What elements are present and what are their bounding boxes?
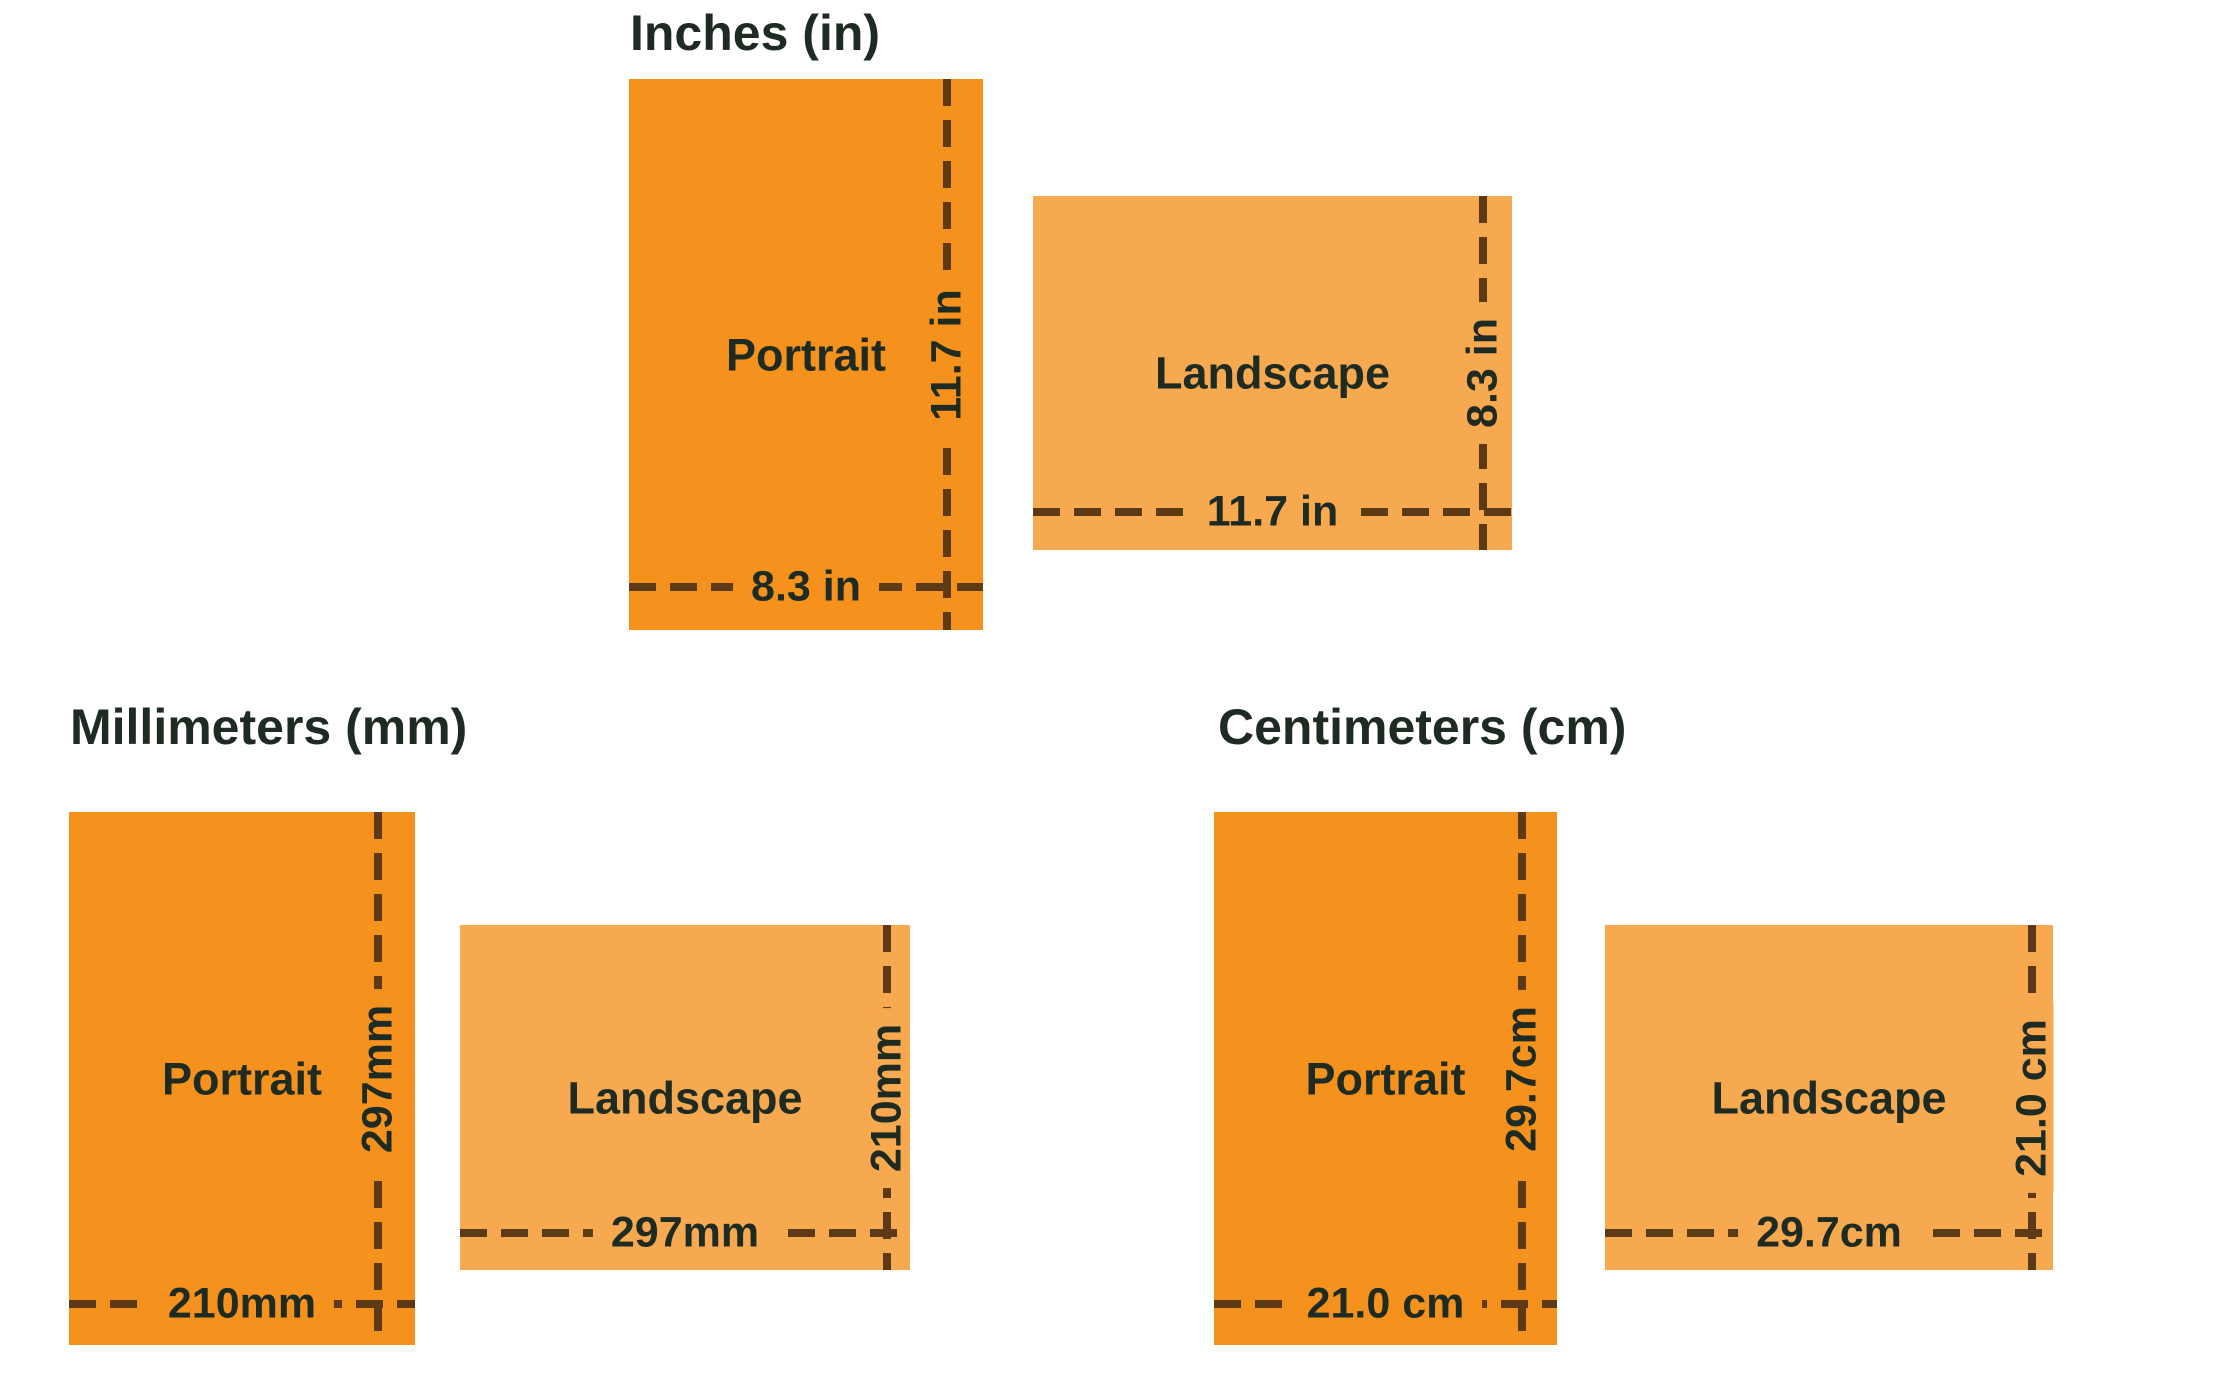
- width-dimension-label: 297mm: [593, 1212, 777, 1255]
- centimeters-portrait-sheet: 29.7cm 21.0 cm Portrait: [1214, 812, 1557, 1345]
- height-dimension-label: 210mm: [866, 1007, 909, 1187]
- orientation-label-landscape: Landscape: [1155, 351, 1390, 396]
- section-title-inches: Inches (in): [630, 8, 880, 58]
- orientation-label-portrait: Portrait: [726, 332, 886, 377]
- height-dimension-label: 29.7cm: [1501, 990, 1544, 1168]
- inches-portrait-sheet: 11.7 in 8.3 in Portrait: [629, 79, 983, 630]
- paper-size-infographic: Inches (in) 11.7 in 8.3 in Portrait 8.3 …: [0, 0, 2213, 1375]
- width-dimension-label: 11.7 in: [1189, 491, 1356, 534]
- orientation-label-landscape: Landscape: [567, 1075, 802, 1120]
- height-dimension-label: 11.7 in: [926, 273, 969, 436]
- orientation-label-portrait: Portrait: [1305, 1056, 1465, 1101]
- inches-landscape-sheet: 8.3 in 11.7 in Landscape: [1033, 196, 1512, 550]
- height-dimension-label: 21.0 cm: [2011, 1003, 2054, 1193]
- width-dimension-label: 210mm: [150, 1283, 334, 1326]
- height-dimension-label: 8.3 in: [1462, 302, 1505, 444]
- width-dimension-label: 21.0 cm: [1289, 1283, 1483, 1326]
- millimeters-landscape-sheet: 210mm 297mm Landscape: [460, 925, 910, 1270]
- centimeters-landscape-sheet: 21.0 cm 29.7cm Landscape: [1605, 925, 2053, 1270]
- height-dimension-label: 297mm: [357, 988, 400, 1168]
- section-title-centimeters: Centimeters (cm): [1218, 702, 1626, 752]
- orientation-label-landscape: Landscape: [1711, 1075, 1946, 1120]
- millimeters-portrait-sheet: 297mm 210mm Portrait: [69, 812, 415, 1345]
- section-title-millimeters: Millimeters (mm): [70, 702, 467, 752]
- width-dimension-label: 29.7cm: [1738, 1212, 1920, 1255]
- orientation-label-portrait: Portrait: [162, 1056, 322, 1101]
- width-dimension-label: 8.3 in: [733, 566, 879, 609]
